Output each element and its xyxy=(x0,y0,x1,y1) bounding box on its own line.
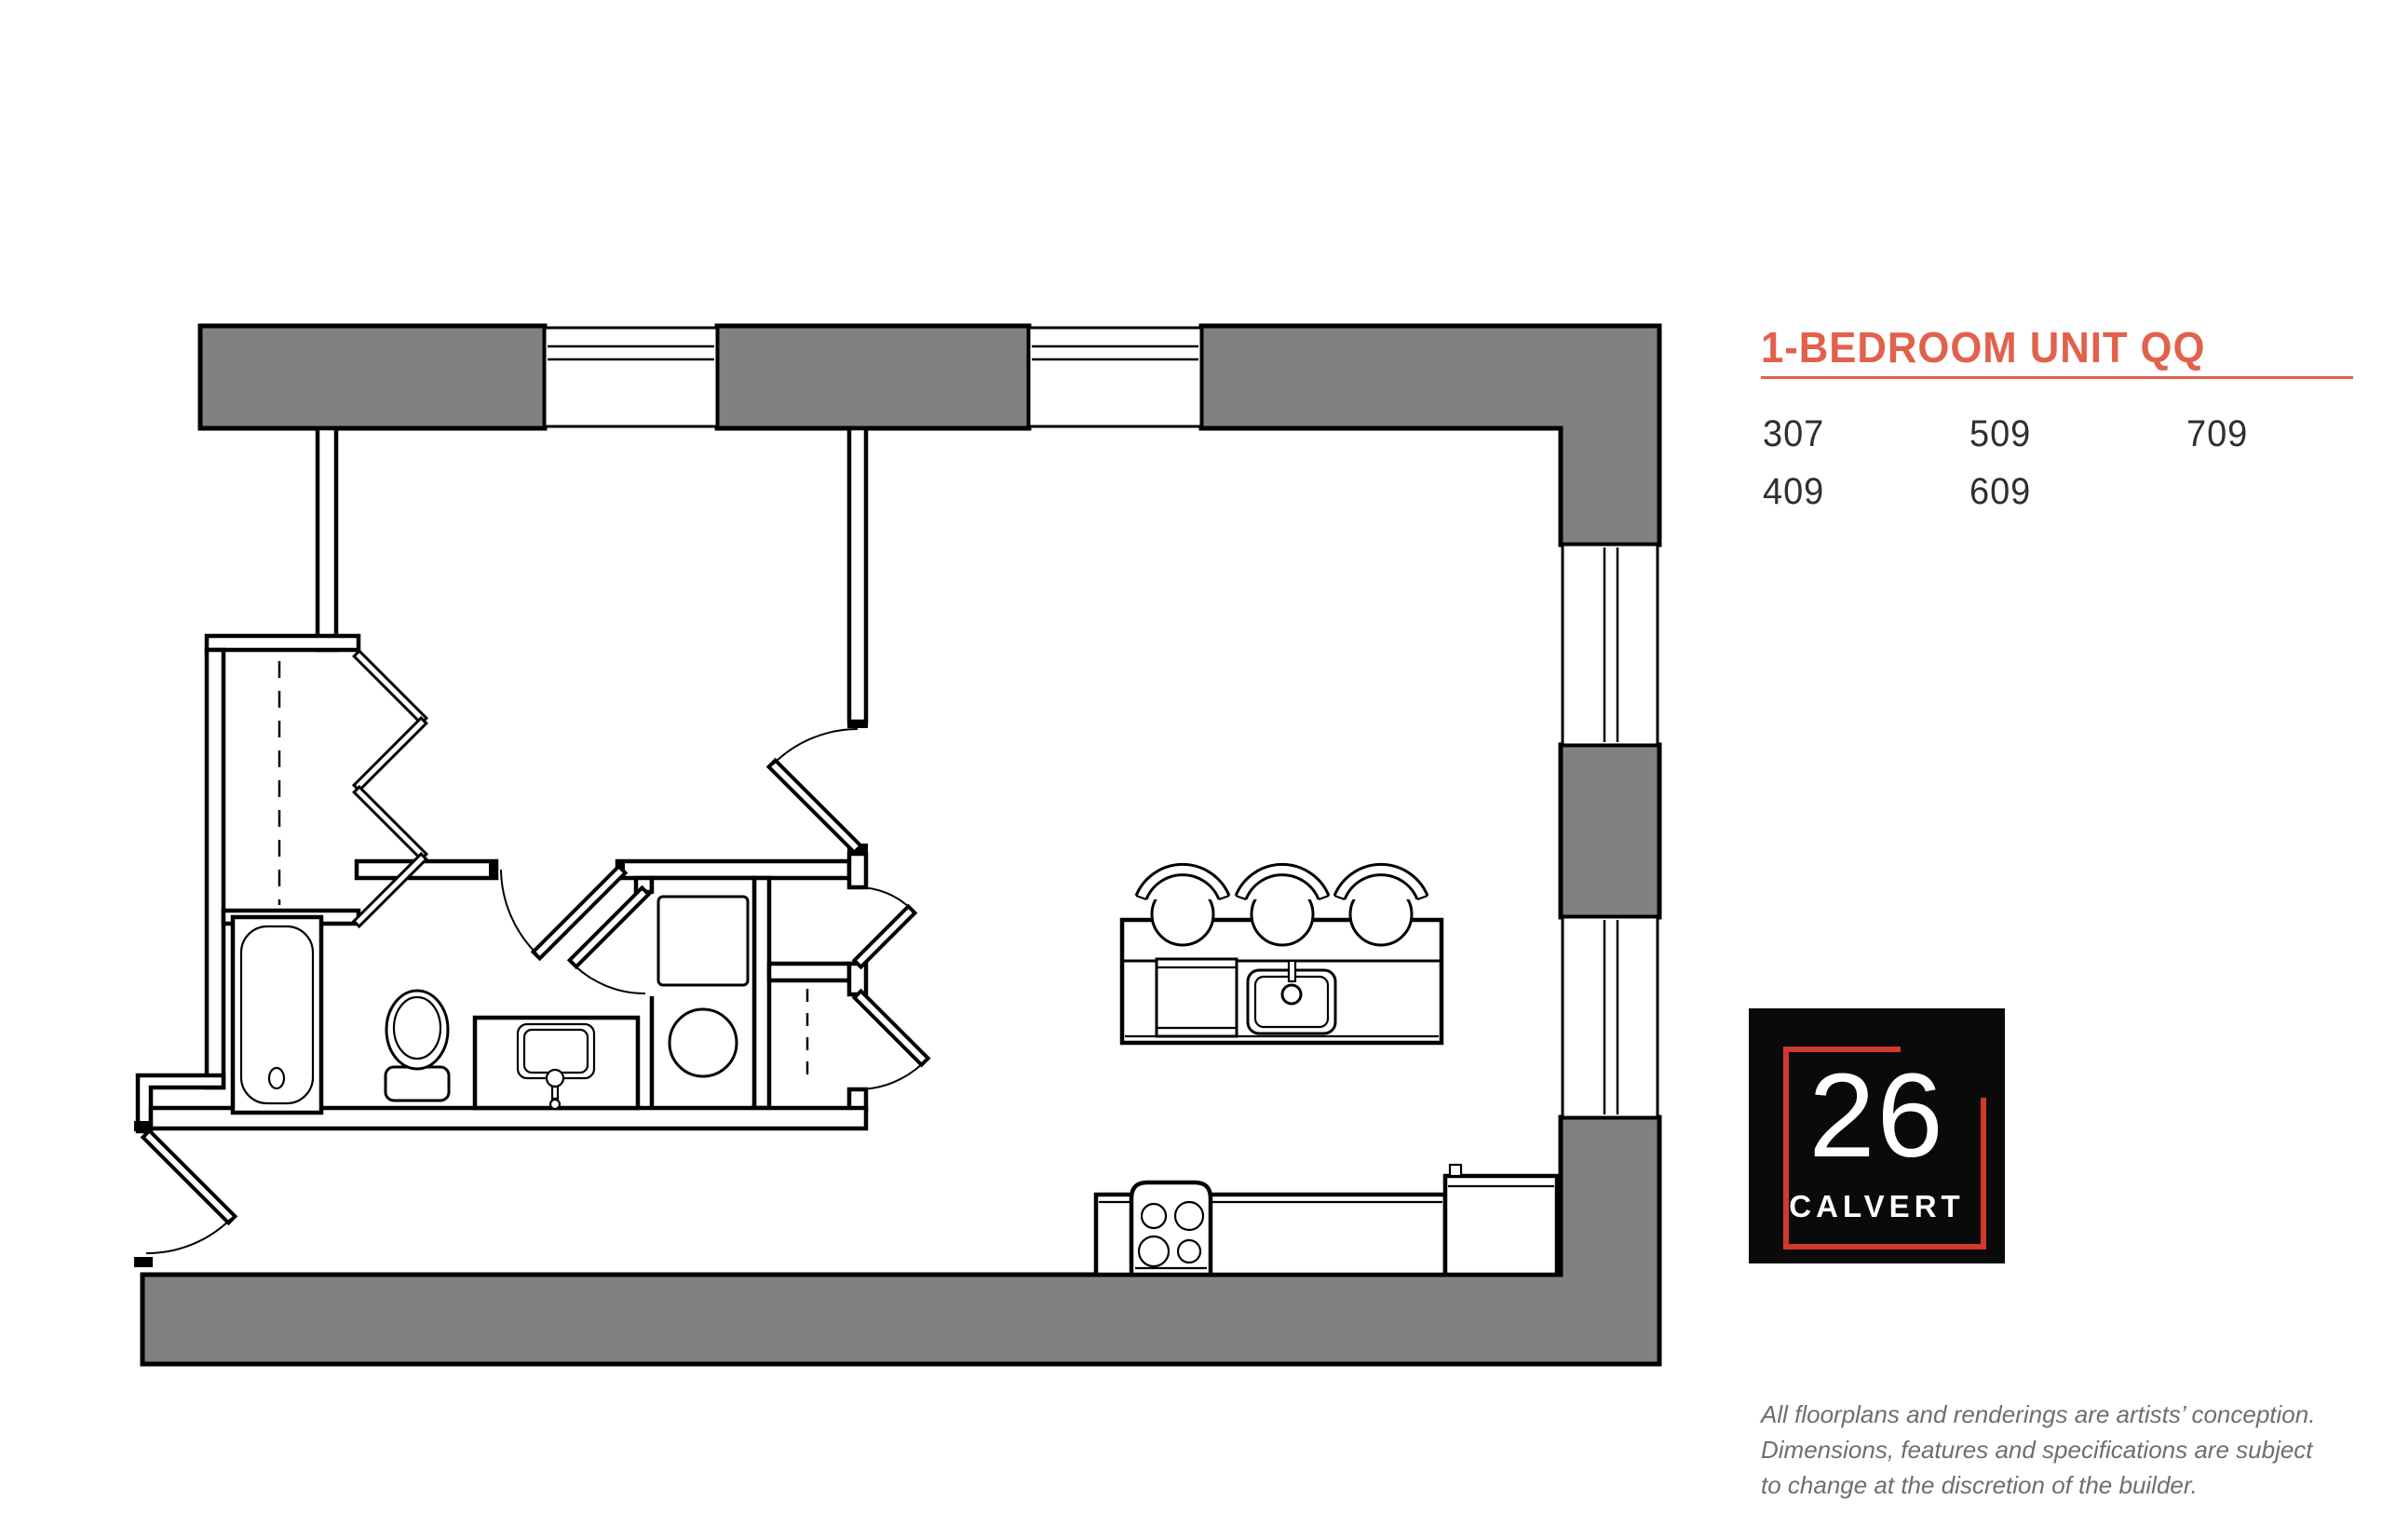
unit-number: 609 xyxy=(1969,471,2031,513)
kitchen-counter xyxy=(1096,1165,1557,1275)
unit-number: 409 xyxy=(1763,471,1824,513)
refrigerator-icon xyxy=(1445,1165,1557,1275)
unit-number: 307 xyxy=(1763,413,1824,455)
title-underline xyxy=(1761,376,2353,379)
disclaimer-line: to change at the discretion of the build… xyxy=(1761,1467,2357,1503)
brand-logo: 26 CALVERT xyxy=(1749,1008,2005,1263)
island-sink-icon xyxy=(1248,961,1335,1033)
coat-closet-door xyxy=(854,887,914,967)
top-wall-window-1 xyxy=(545,328,717,426)
bathtub-icon xyxy=(233,917,321,1113)
dishwasher-icon xyxy=(1157,959,1237,1036)
washer-dryer-icon xyxy=(658,897,748,1076)
unit-number: 709 xyxy=(2186,413,2248,455)
unit-numbers: 307 509 709 409 609 xyxy=(1763,413,2359,534)
entry-door xyxy=(142,1130,235,1253)
linen-closet-door xyxy=(854,991,927,1089)
bedroom-door xyxy=(769,729,861,853)
vanity-sink-icon xyxy=(475,1018,638,1109)
range-icon xyxy=(1131,1182,1211,1275)
bathroom-door xyxy=(501,866,626,958)
unit-number: 509 xyxy=(1969,413,2031,455)
right-wall-window-1 xyxy=(1563,545,1658,745)
disclaimer-text: All floorplans and renderings are artist… xyxy=(1761,1397,2357,1503)
logo-name: CALVERT xyxy=(1749,1191,2005,1222)
toilet-icon xyxy=(386,991,449,1101)
right-wall-window-2 xyxy=(1563,917,1658,1117)
top-wall-window-2 xyxy=(1029,328,1201,426)
floor-plan xyxy=(0,0,1723,1540)
disclaimer-line: All floorplans and renderings are artist… xyxy=(1761,1397,2357,1432)
bifold-closet-doors xyxy=(354,651,426,926)
bathroom-fixtures xyxy=(233,917,638,1113)
page-canvas: 1-BEDROOM UNIT QQ 307 509 709 409 609 26… xyxy=(0,0,2382,1540)
laundry-closet xyxy=(652,878,754,1108)
disclaimer-line: Dimensions, features and specifications … xyxy=(1761,1432,2357,1467)
kitchen-island xyxy=(1122,864,1441,1043)
logo-number: 26 xyxy=(1749,1057,2005,1176)
plan-title: 1-BEDROOM UNIT QQ xyxy=(1761,322,2205,372)
